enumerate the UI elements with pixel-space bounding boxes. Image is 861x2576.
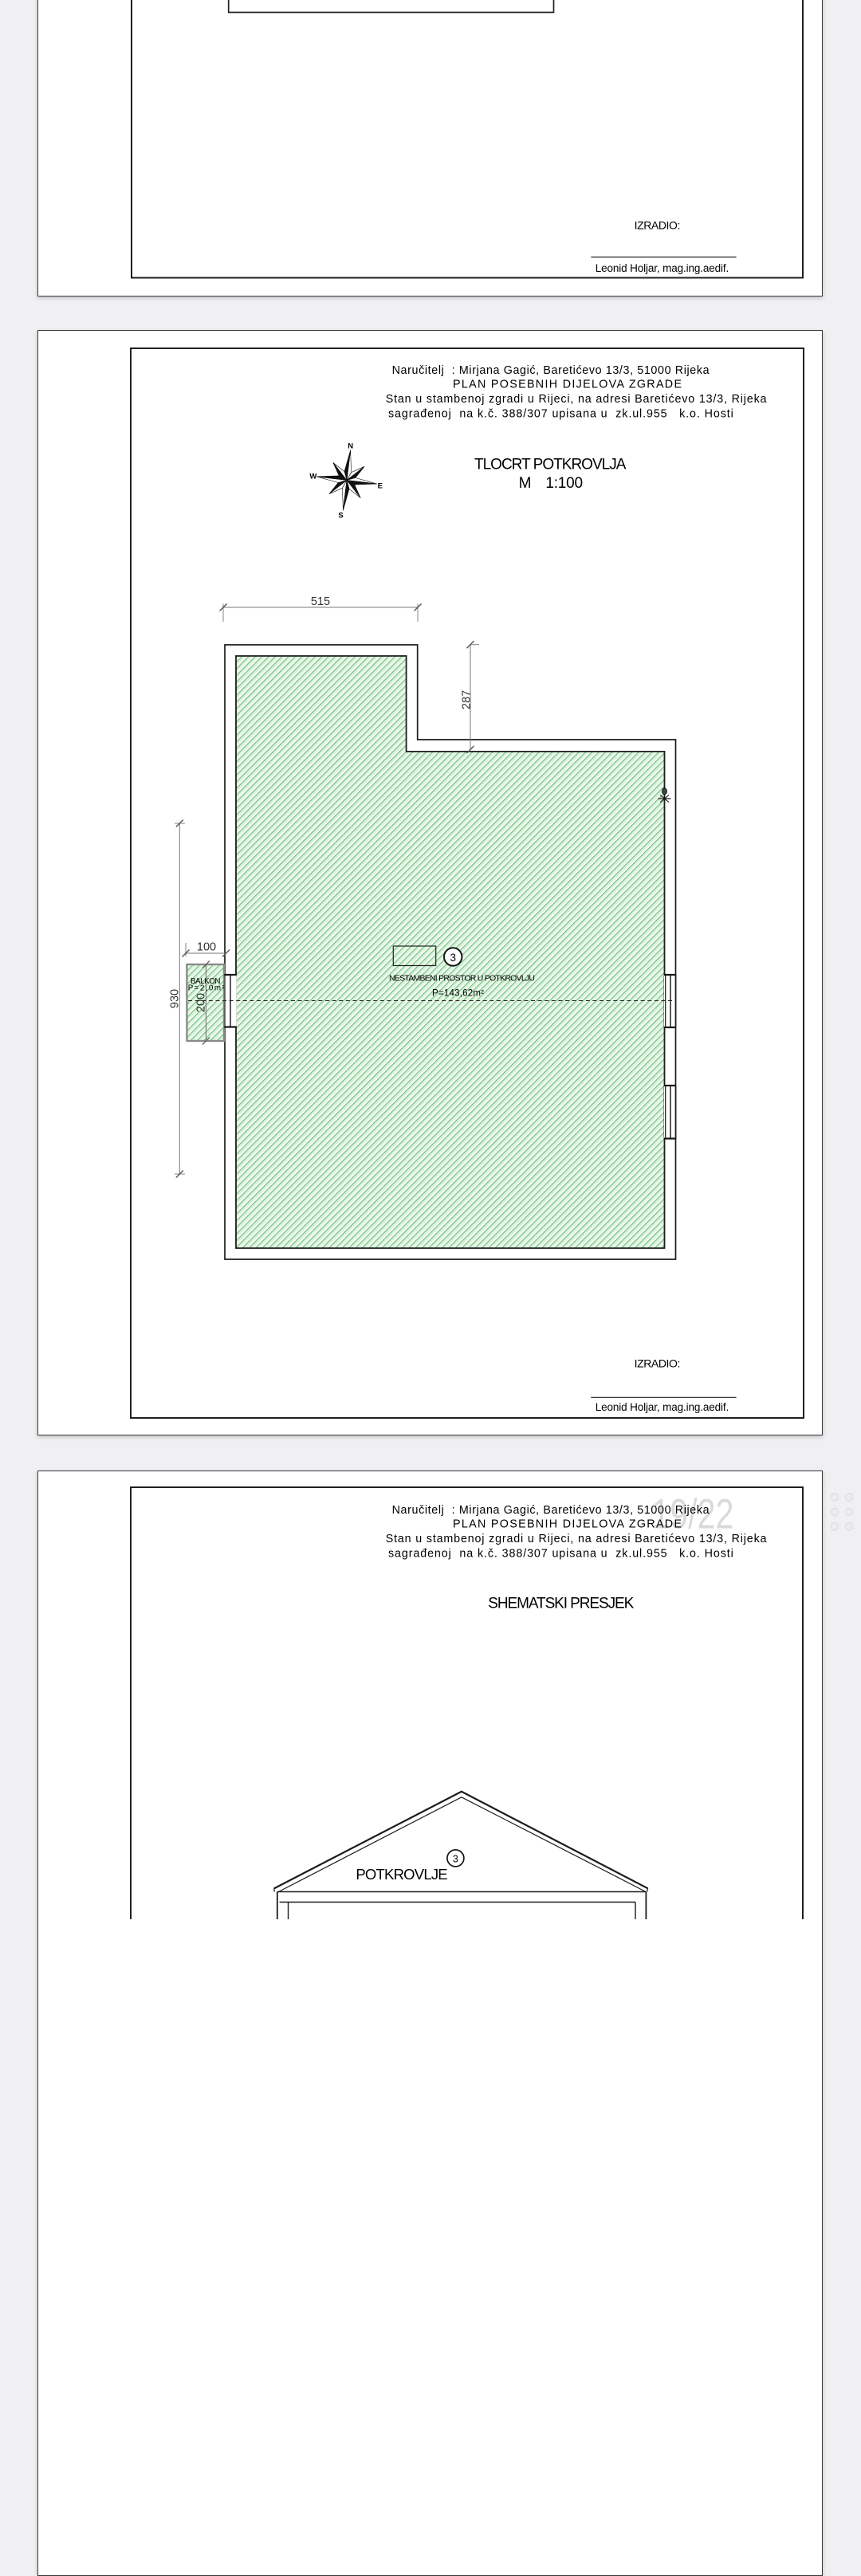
- svg-text:930: 930: [169, 989, 182, 1008]
- svg-text:NESTAMBENI PROSTOR U POTKROVLJ: NESTAMBENI PROSTOR U POTKROVLJU: [389, 974, 535, 984]
- svg-text:1:100: 1:100: [545, 475, 583, 492]
- svg-text:sagrađenoj na k.č. 388/307 up: sagrađenoj na k.č. 388/307 upisana u zk.…: [388, 1548, 733, 1561]
- svg-text:3: 3: [453, 1853, 458, 1864]
- svg-text:Naručitelj : Mirjana Gagić, B: Naručitelj : Mirjana Gagić, Baretićevo 1…: [392, 364, 710, 377]
- svg-text:3: 3: [450, 952, 456, 964]
- svg-text:Leonid Holjar, mag.ing.aedif.: Leonid Holjar, mag.ing.aedif.: [596, 1401, 729, 1413]
- svg-text:SHEMATSKI PRESJEK: SHEMATSKI PRESJEK: [488, 1595, 634, 1612]
- svg-text:Stan u stambenoj zgradi u Rije: Stan u stambenoj zgradi u Rijeci, na adr…: [386, 393, 767, 406]
- svg-text:IZRADIO:: IZRADIO:: [635, 1357, 681, 1370]
- svg-text:S: S: [338, 512, 343, 520]
- svg-text:POTKROVLJE: POTKROVLJE: [356, 1866, 447, 1883]
- svg-text:P=143,62m²: P=143,62m²: [432, 989, 484, 999]
- svg-text:PLAN POSEBNIH DIJELOVA ZGRADE: PLAN POSEBNIH DIJELOVA ZGRADE: [453, 1518, 682, 1531]
- svg-text:IZRADIO:: IZRADIO:: [635, 219, 681, 232]
- svg-text:Naručitelj : Mirjana Gagić, B: Naručitelj : Mirjana Gagić, Baretićevo 1…: [392, 1504, 710, 1517]
- svg-text:W: W: [309, 472, 316, 481]
- svg-text:287: 287: [461, 690, 474, 709]
- svg-text:100: 100: [197, 940, 216, 953]
- svg-text:PLAN POSEBNIH DIJELOVA ZGRADE: PLAN POSEBNIH DIJELOVA ZGRADE: [453, 379, 682, 391]
- svg-text:M: M: [519, 475, 532, 492]
- svg-text:Leonid Holjar, mag.ing.aedif.: Leonid Holjar, mag.ing.aedif.: [596, 262, 729, 274]
- svg-text:sagrađenoj na k.č. 388/307 up: sagrađenoj na k.č. 388/307 upisana u zk.…: [388, 408, 733, 421]
- svg-text:P=2,0m²: P=2,0m²: [188, 984, 226, 992]
- svg-text:200: 200: [195, 993, 208, 1012]
- svg-text:E: E: [378, 481, 383, 490]
- svg-text:N: N: [348, 442, 353, 451]
- svg-text:TLOCRT POTKROVLJA: TLOCRT POTKROVLJA: [474, 457, 627, 473]
- svg-text:Stan u stambenoj zgradi u Rije: Stan u stambenoj zgradi u Rijeci, na adr…: [386, 1533, 767, 1545]
- svg-text:515: 515: [311, 595, 330, 608]
